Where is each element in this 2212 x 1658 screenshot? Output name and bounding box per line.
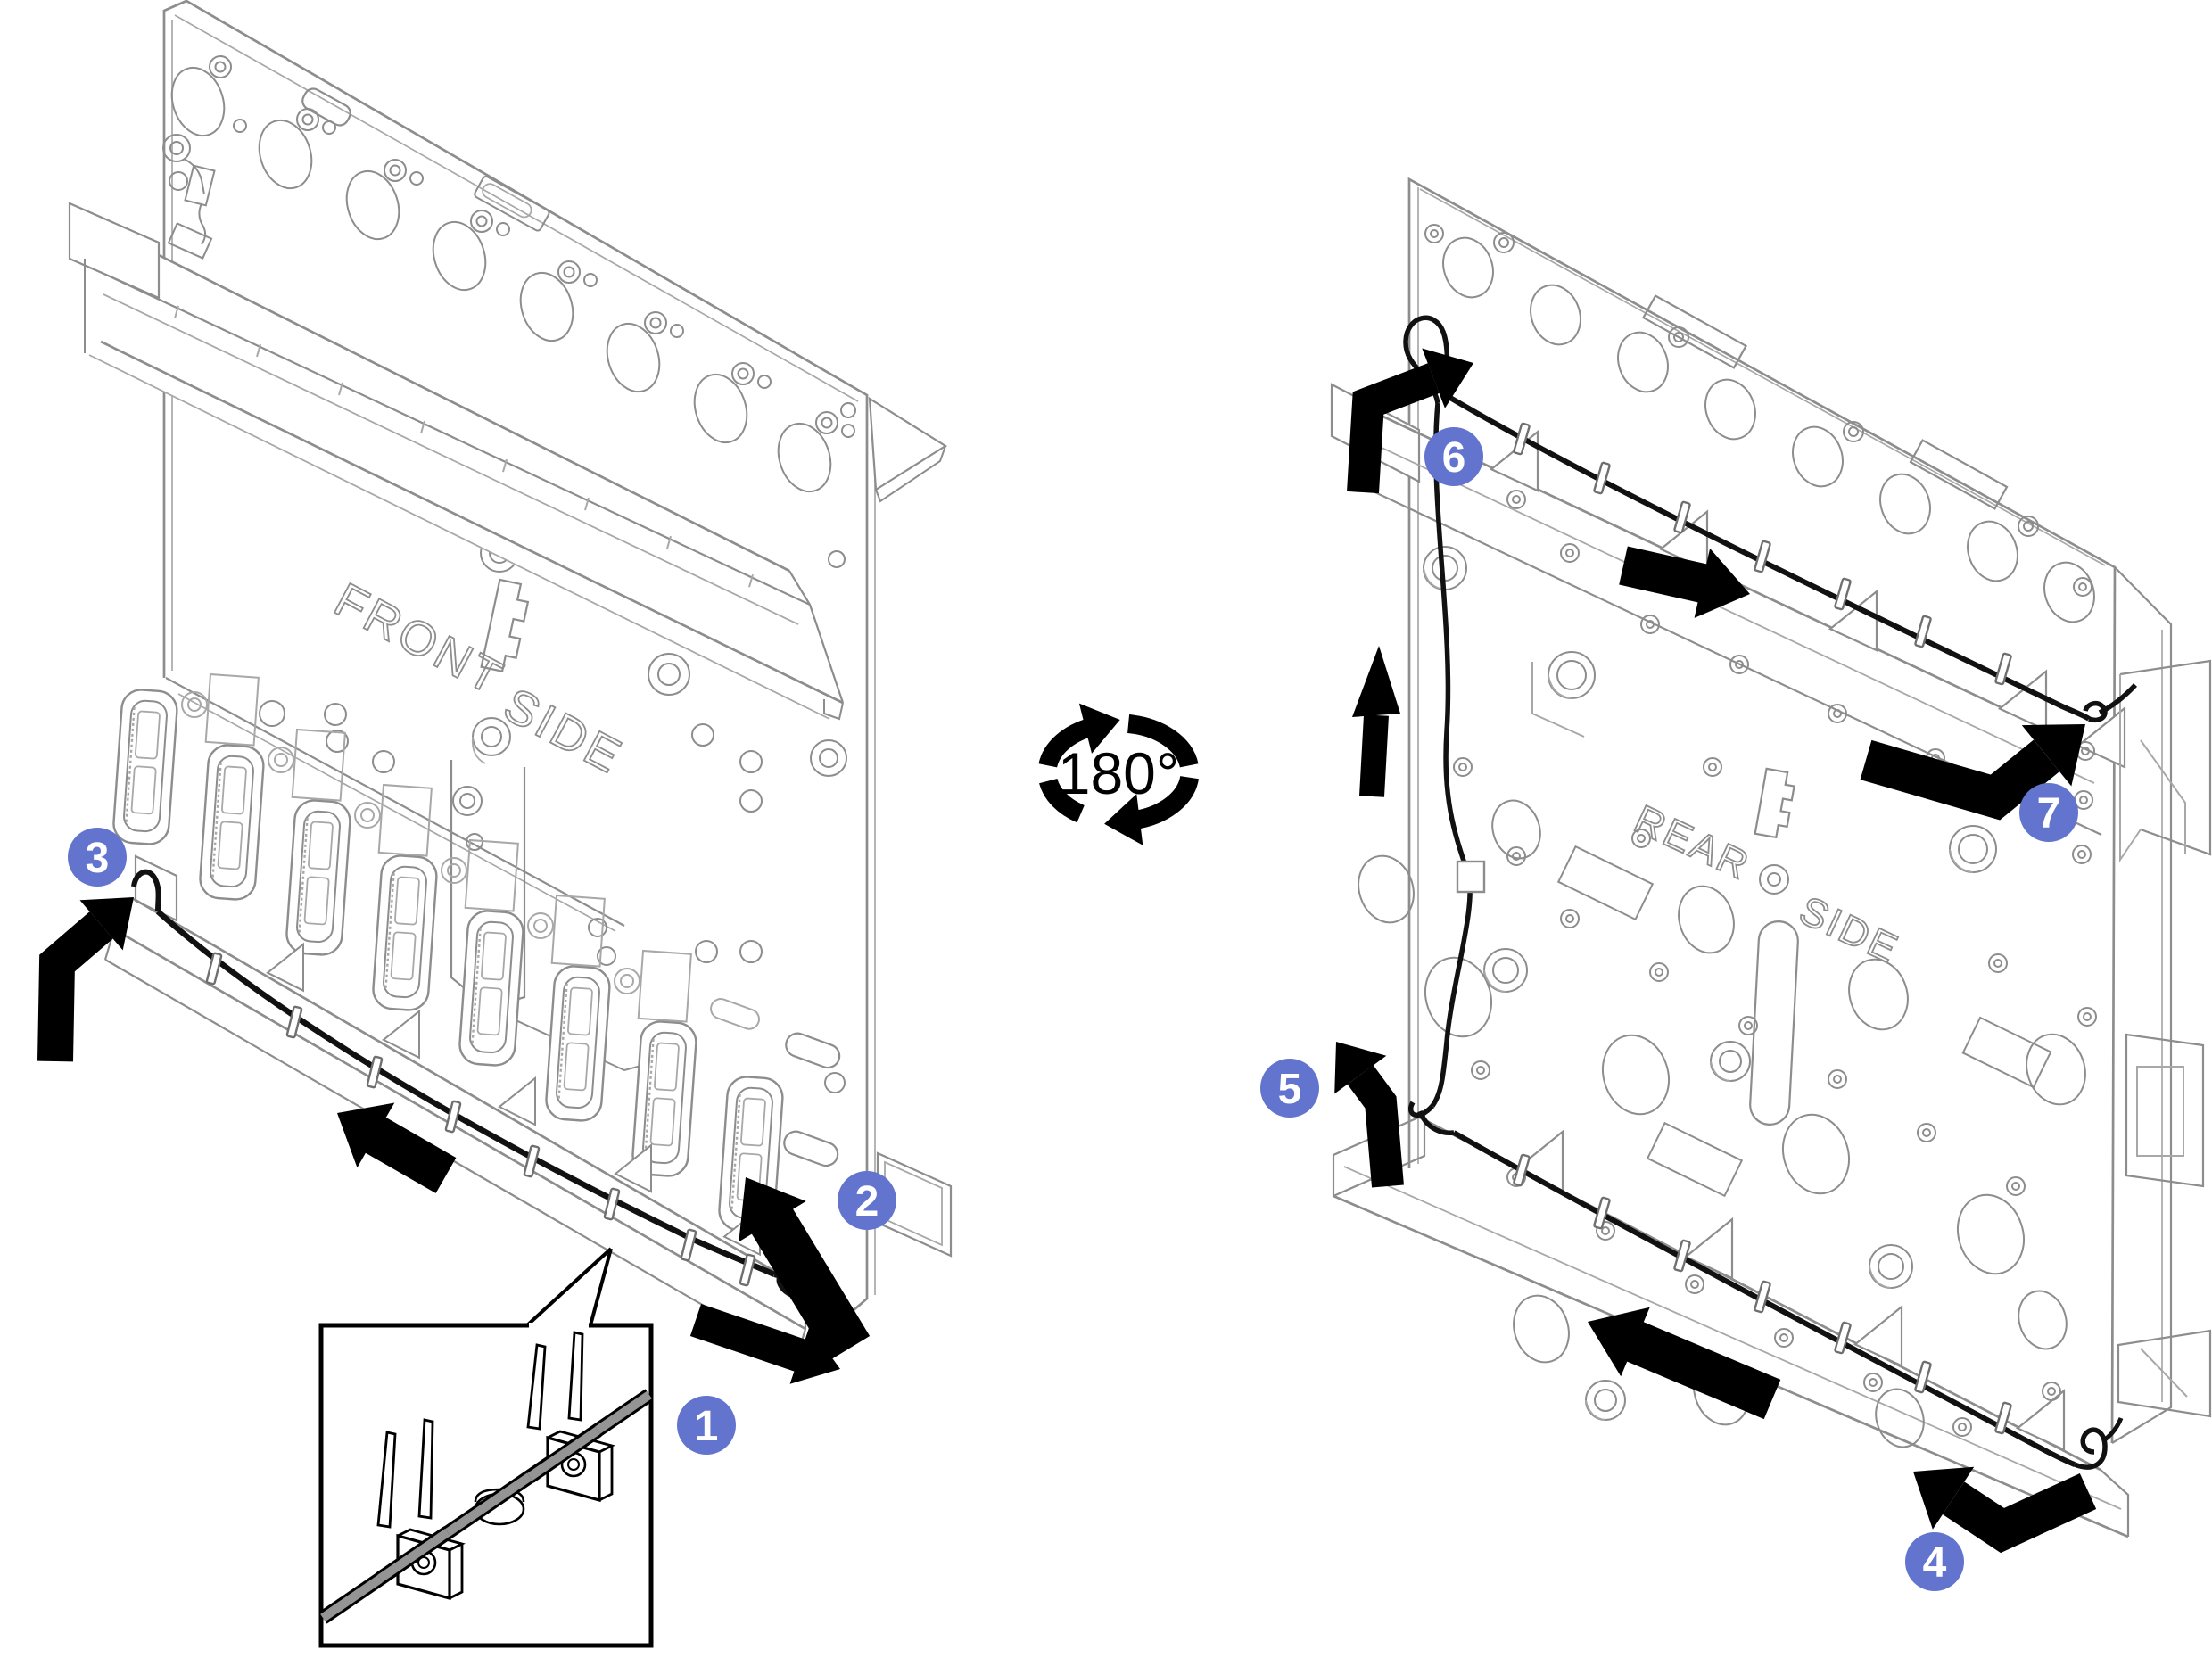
svg-text:2: 2 (855, 1178, 879, 1225)
svg-text:180°: 180° (1058, 740, 1180, 806)
svg-text:1: 1 (695, 1403, 719, 1450)
svg-text:3: 3 (86, 835, 110, 882)
svg-text:7: 7 (2037, 790, 2061, 837)
svg-text:6: 6 (1442, 434, 1466, 482)
svg-text:4: 4 (1923, 1539, 1947, 1587)
svg-text:5: 5 (1278, 1066, 1302, 1113)
